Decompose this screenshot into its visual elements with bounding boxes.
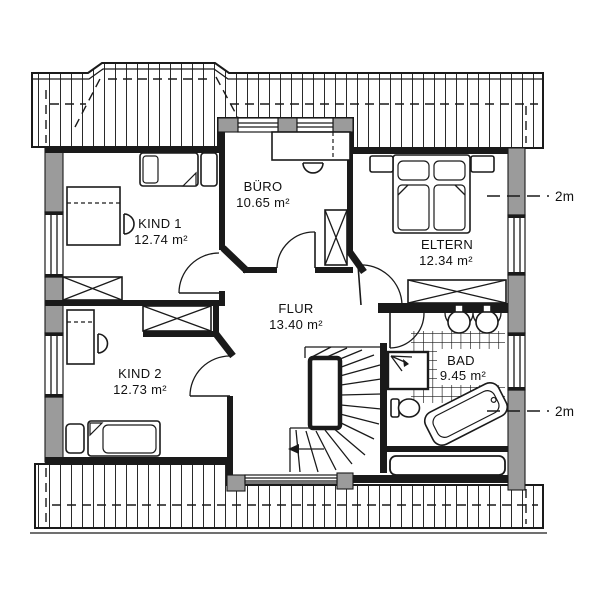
wardrobe-eltern xyxy=(408,280,506,303)
room-name-eltern: ELTERN xyxy=(421,237,473,252)
wardrobe-kind2 xyxy=(143,306,211,331)
bed-eltern xyxy=(393,155,470,233)
dimension-2m-upper: 2m xyxy=(487,189,574,204)
wardrobe-kind1 xyxy=(63,277,122,300)
window-kind1 xyxy=(45,212,63,277)
room-name-kind1: KIND 1 xyxy=(138,216,182,231)
window-eltern xyxy=(508,215,525,275)
room-name-buero: BÜRO xyxy=(244,179,283,194)
room-area-flur: 13.40 m² xyxy=(269,317,323,332)
knee-wall-storage xyxy=(390,456,505,475)
window-buero-2 xyxy=(297,118,333,132)
door-kind2 xyxy=(190,356,230,396)
dimension-label: 2m xyxy=(555,404,574,419)
dimension-label: 2m xyxy=(555,189,574,204)
floor-plan: 2m 2m KIND 1 12.74 m² KIND 2 12.73 m² BÜ… xyxy=(0,0,600,600)
window-kind2 xyxy=(45,333,63,397)
room-name-kind2: KIND 2 xyxy=(118,366,162,381)
room-kind2-furniture xyxy=(66,306,211,456)
toilet xyxy=(391,399,420,417)
room-name-flur: FLUR xyxy=(278,301,313,316)
shower xyxy=(388,352,428,389)
staircase xyxy=(288,347,381,472)
desk-kind1 xyxy=(67,187,134,245)
desk-buero xyxy=(272,132,350,173)
room-area-buero: 10.65 m² xyxy=(236,195,290,210)
nightstand-kind1 xyxy=(201,153,217,186)
window-buero-1 xyxy=(238,118,278,132)
room-name-bad: BAD xyxy=(447,353,475,368)
door-buero xyxy=(277,232,315,268)
nightstand-eltern-right xyxy=(471,156,494,172)
desk-kind2 xyxy=(67,310,108,364)
nightstand-kind2 xyxy=(66,424,84,453)
window-bad xyxy=(508,333,525,390)
bed-kind1 xyxy=(140,153,198,186)
room-area-kind2: 12.73 m² xyxy=(113,382,167,397)
window-landing xyxy=(245,475,337,483)
room-eltern-furniture xyxy=(370,155,506,303)
door-kind1 xyxy=(179,253,219,293)
room-area-eltern: 12.34 m² xyxy=(419,253,473,268)
bed-kind2 xyxy=(88,421,160,456)
room-area-kind1: 12.74 m² xyxy=(134,232,188,247)
floor-plan-svg: 2m 2m KIND 1 12.74 m² KIND 2 12.73 m² BÜ… xyxy=(0,0,600,600)
nightstand-eltern-left xyxy=(370,156,393,172)
stair-void xyxy=(310,358,340,428)
wardrobe-buero xyxy=(325,210,347,265)
stair-direction-arrow-icon xyxy=(288,444,324,454)
room-area-bad: 9.45 m² xyxy=(440,368,487,383)
